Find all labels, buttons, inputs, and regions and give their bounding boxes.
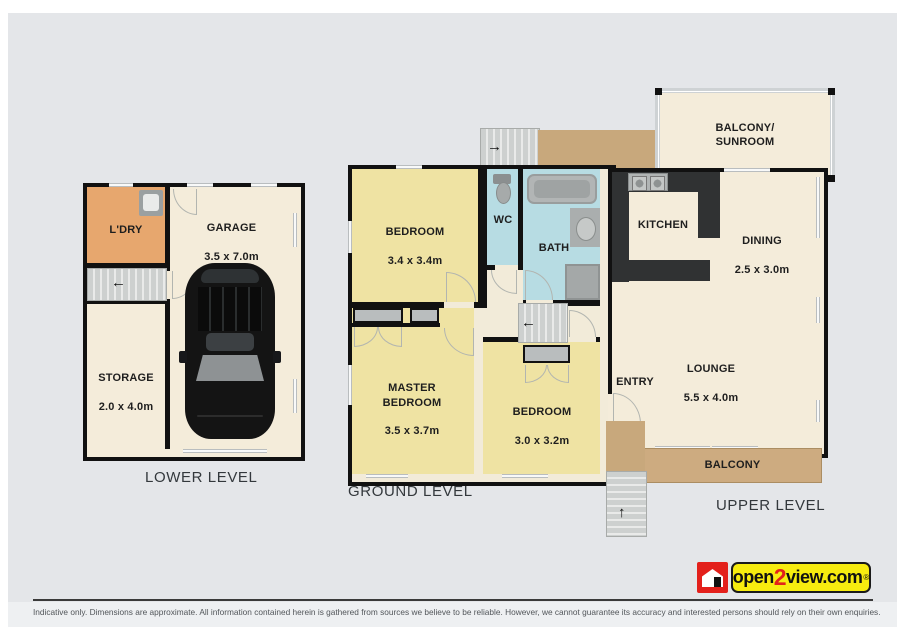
floorplan-ground-level: ← BEDROOM 3.4 x 3.4m WC BATH MASTER BEDR… [348,165,616,486]
wall-corner [828,88,835,95]
stairs-entry-exterior [606,471,647,537]
wc-label: WC [485,213,521,227]
floorplan-lower-level: ← L'DRY GARAGE 3.5 x 7.0m STORAGE 2.0 x … [83,183,305,461]
window [293,379,297,413]
master-bedroom-label: MASTER BEDROOM 3.5 x 3.7m [369,367,455,438]
door-arc [569,310,596,337]
dining-dims: 2.5 x 3.0m [735,264,790,276]
door-arc [491,270,517,294]
car-icon [185,263,275,439]
balcony-sunroom-label: BALCONY/ SUNROOM [715,121,774,150]
logo-text-two: 2 [774,566,786,589]
stove-icon [628,173,668,191]
door-gap [608,394,612,424]
dining-name: DINING [742,235,782,247]
laundry-label: L'DRY [87,223,165,237]
shower-icon [565,264,600,300]
basin-icon [576,217,596,241]
stairs-up-arrow-icon: ↑ [618,505,626,520]
wall [478,169,487,308]
wardrobe [523,345,570,363]
floorplan-page: ← L'DRY GARAGE 3.5 x 7.0m STORAGE 2.0 x … [0,0,905,640]
bedroom1-label: BEDROOM 3.4 x 3.4m [372,211,458,268]
balcony-label: BALCONY [705,458,761,472]
window [816,177,820,238]
upper-level-caption: UPPER LEVEL [716,497,825,514]
window [816,297,820,323]
laundry-sink-icon [139,190,163,216]
wardrobe [410,308,439,323]
window [366,474,408,478]
stairs-up-arrow-icon: → [487,139,502,154]
window [502,474,548,478]
window [187,183,213,187]
garage-door-marker [183,449,267,453]
storage-label: STORAGE 2.0 x 4.0m [87,357,165,414]
bedroom1-dims: 3.4 x 3.4m [388,255,443,267]
storage-dims: 2.0 x 4.0m [99,401,154,413]
logo-text-view: view.com [786,567,862,588]
garage-name: GARAGE [207,222,256,234]
storage-name: STORAGE [98,372,154,384]
deck-walkway [538,130,658,168]
ground-level-caption: GROUND LEVEL [348,483,473,500]
window [348,221,352,253]
window [396,165,422,169]
wardrobe [353,308,403,323]
disclaimer-text: Indicative only. Dimensions are approxim… [33,607,881,617]
wall [474,302,487,308]
floorplan-upper-level: KITCHEN DINING 2.5 x 3.0m LOUNGE 5.5 x 4… [608,168,828,458]
toilet-bowl-icon [496,182,511,204]
bath-label: BATH [528,241,580,255]
lower-level-caption: LOWER LEVEL [145,469,257,486]
kitchen-label: KITCHEN [624,218,702,232]
burner-icon [632,176,647,191]
logo-wordmark: open2view.com® [731,562,871,593]
entry-door-arc [613,393,641,424]
lounge-label: LOUNGE 5.5 x 4.0m [659,348,763,405]
dining-label: DINING 2.5 x 3.0m [716,220,808,277]
entry-landing [606,421,645,471]
window [251,183,277,187]
window [293,213,297,247]
sliding-door-marker [724,168,770,172]
logo-text-open: open [733,567,774,588]
kitchen-counter [612,260,710,281]
room-balcony: BALCONY [643,448,822,483]
logo-house-badge [697,562,728,593]
lounge-name: LOUNGE [687,363,735,375]
stairs-lower-level [87,268,167,301]
stairs-down-arrow-icon: ← [521,315,536,330]
burner-icon [650,176,665,191]
bedroom2-dims: 3.0 x 3.2m [515,435,570,447]
window [816,400,820,422]
registered-mark: ® [863,573,869,582]
wall-corner [655,88,662,95]
wall [596,337,600,342]
window [109,183,133,187]
lounge-dims: 5.5 x 4.0m [684,392,739,404]
stairs-down-arrow-icon: ← [111,275,126,290]
footer-separator [33,599,873,601]
bedroom1-name: BEDROOM [386,226,445,238]
window [348,365,352,405]
master-name: MASTER BEDROOM [383,382,442,408]
garage-label: GARAGE 3.5 x 7.0m [170,207,293,264]
bedroom2-name: BEDROOM [513,406,572,418]
bathtub-icon [527,174,597,204]
master-dims: 3.5 x 3.7m [385,425,440,437]
wall-corner [828,175,835,182]
garage-dims: 3.5 x 7.0m [204,251,259,263]
bedroom2-label: BEDROOM 3.0 x 3.2m [494,391,590,448]
entry-label: ENTRY [612,375,658,389]
house-door-icon [714,577,721,587]
